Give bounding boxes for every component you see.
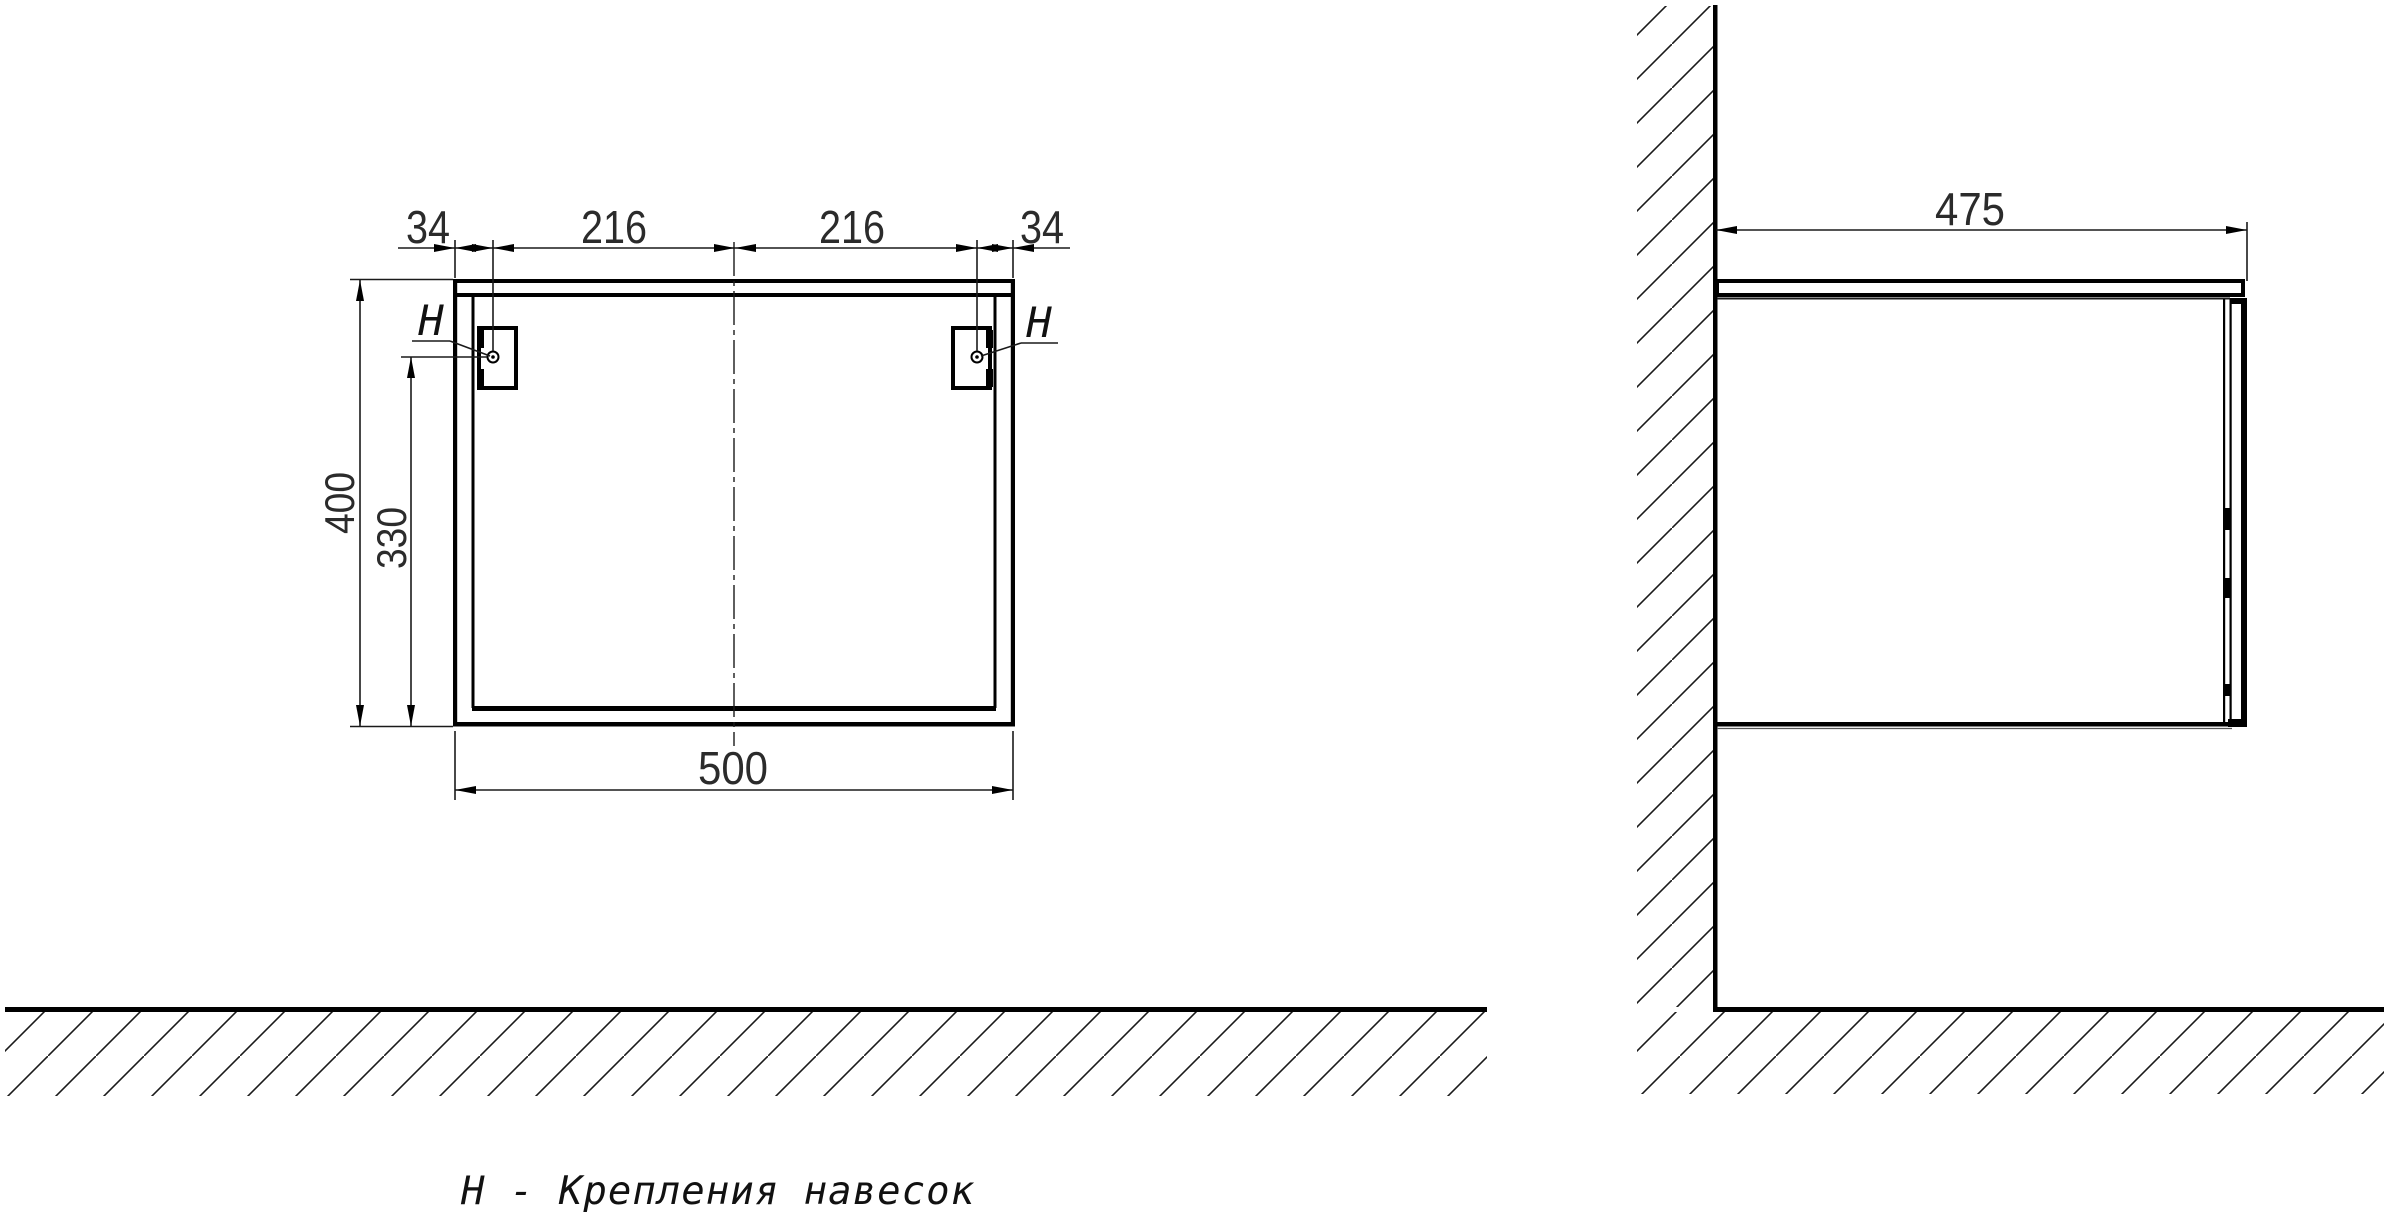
dim-label-34-right: 34 <box>1020 201 1064 253</box>
dim-label-475: 475 <box>1935 183 2005 235</box>
cabinet-side-outline <box>1717 281 2247 729</box>
ground <box>5 1007 2384 1096</box>
fastener-label-h-right: Н <box>1025 298 1052 347</box>
fitting-tick <box>2223 578 2231 598</box>
dim-label-500: 500 <box>698 742 768 794</box>
bracket-hole-center <box>975 355 979 359</box>
top-panel-side <box>1717 281 2243 295</box>
caption: Н - Крепления навесок <box>460 1169 975 1214</box>
ground-line-left <box>5 1007 1487 1012</box>
left-dimension-400: 400 <box>316 280 453 727</box>
door-top-cap <box>2230 298 2247 304</box>
fastener-label-h-left: Н <box>417 296 444 345</box>
bottom-dimension-500: 500 <box>455 731 1013 800</box>
wall-section <box>1637 5 1718 1009</box>
fitting-tick <box>2223 684 2231 696</box>
technical-drawing-canvas: 34 216 216 34 400 330 50 <box>0 0 2384 1215</box>
ground-hatch-right <box>1637 1012 2384 1094</box>
ground-line-right <box>1713 1007 2384 1012</box>
depth-dimension-475: 475 <box>1716 183 2247 281</box>
bracket-hole-center <box>491 355 495 359</box>
left-dimension-330: 330 <box>368 357 487 726</box>
right-side-panel-inner <box>994 296 997 708</box>
bracket-flange-mark <box>477 369 484 387</box>
right-side-panel-outer <box>1011 283 1015 726</box>
wall-line <box>1713 5 1718 1009</box>
mounting-bracket-right <box>953 328 993 388</box>
bracket-flange-mark <box>986 369 993 387</box>
bottom-edge-side <box>1717 722 2232 727</box>
dim-label-216-left: 216 <box>581 201 647 253</box>
bracket-flange-mark <box>986 330 993 348</box>
front-view: 34 216 216 34 400 330 50 <box>316 201 1070 800</box>
left-side-panel-outer <box>453 283 457 726</box>
mounting-bracket-left <box>477 328 516 388</box>
door-front-edge <box>2241 299 2247 727</box>
dim-label-34-left: 34 <box>406 201 450 253</box>
dim-label-216-right: 216 <box>819 201 885 253</box>
dim-label-400: 400 <box>316 472 363 534</box>
dim-label-330: 330 <box>368 507 415 569</box>
ground-hatch-left <box>5 1012 1487 1096</box>
wall-hatch <box>1637 6 1714 1007</box>
side-view: 475 <box>1637 5 2247 1009</box>
bracket-flange-mark <box>477 330 484 348</box>
fitting-tick <box>2223 508 2231 530</box>
